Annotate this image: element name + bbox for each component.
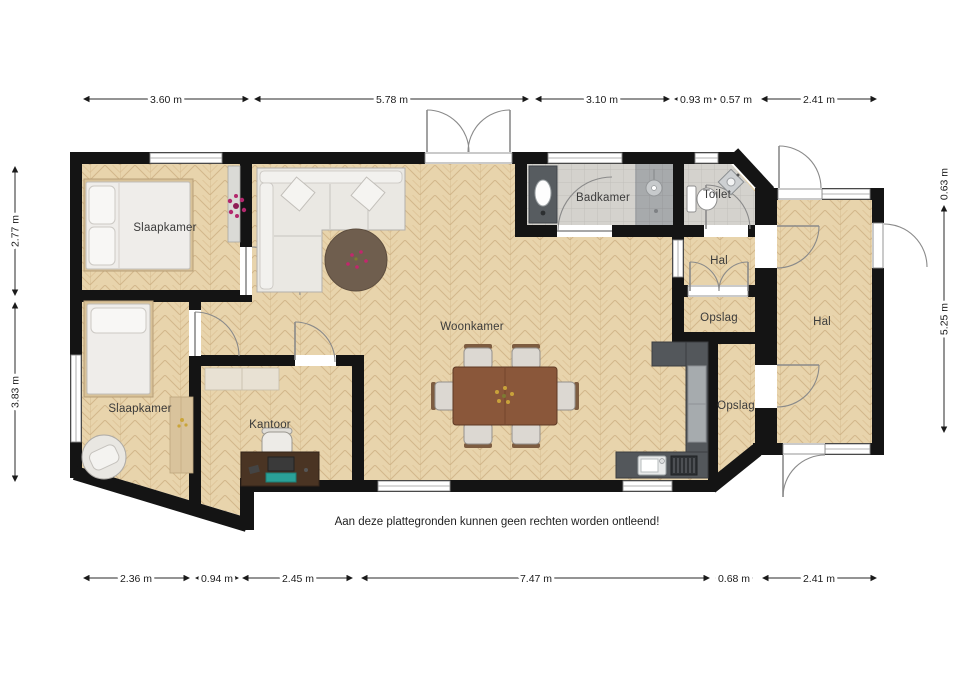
room-label-opslag: Opslag [717,400,755,412]
window [71,355,81,442]
room-label-badkamer: Badkamer [576,192,630,204]
svg-text:0.93 m: 0.93 m [680,94,712,106]
svg-text:2.77 m: 2.77 m [10,215,22,247]
disclaimer-text: Aan deze plattegronden kunnen geen recht… [335,516,660,528]
wall-kitchen-opslag [708,344,718,480]
dim-top-1: 5.78 m [255,94,528,106]
window [623,481,672,491]
room-label-kantoor: Kantoor [249,419,291,431]
door-wing-right [872,223,927,268]
svg-text:0.68 m: 0.68 m [718,573,750,585]
floorplan-page: Slaapkamer Slaapkamer Kantoor Woonkamer … [0,0,960,679]
floorplan-drawing: Slaapkamer Slaapkamer Kantoor Woonkamer … [0,0,960,679]
room-label-slaapkamer-1: Slaapkamer [133,222,196,234]
dim-top-0: 3.60 m [84,94,248,106]
dim-bottom-1: 0.94 m [196,573,238,585]
wall-badkamer-toilet [673,164,684,225]
kitchen-sink [638,456,666,475]
window [822,189,870,199]
door-wing-top-entry [778,146,822,200]
window [378,481,450,491]
svg-text:5.78 m: 5.78 m [376,94,408,106]
room-label-slaapkamer-2: Slaapkamer [108,403,171,415]
dim-left-1: 3.83 m [10,303,22,481]
single-bed [84,301,153,397]
room-label-toilet: Toilet [703,189,732,201]
dim-top-3: 0.93 m [675,94,716,106]
window [150,153,222,163]
wall-slaapkamer-divider [70,290,252,302]
dim-top-2: 3.10 m [536,94,669,106]
dining-table [453,367,557,425]
window-hal-passthrough [673,240,683,277]
dim-bottom-0: 2.36 m [84,573,189,585]
room-label-hal: Hal [813,316,831,328]
window [695,153,718,163]
dim-top-5: 2.41 m [762,94,876,106]
room-label-woonkamer: Woonkamer [440,321,504,333]
dim-right-0: 0.63 m [939,168,951,201]
bathroom-vanity [529,166,557,223]
dim-top-4: 0.57 m [718,94,752,106]
room-label-opslag-klein: Opslag [700,312,738,324]
svg-text:3.60 m: 3.60 m [150,94,182,106]
office-cabinet [205,368,279,390]
dim-bottom-5: 2.41 m [763,573,876,585]
door-wing-bottom [783,443,825,497]
svg-text:5.25 m: 5.25 m [939,303,951,335]
wall-badkamer-left [515,164,527,237]
svg-text:2.36 m: 2.36 m [120,573,152,585]
svg-text:3.83 m: 3.83 m [10,376,22,408]
stove [671,456,697,475]
wall-slaapkamer1-right [240,164,252,247]
svg-text:3.10 m: 3.10 m [586,94,618,106]
svg-text:0.63 m: 0.63 m [939,168,951,200]
svg-text:7.47 m: 7.47 m [520,573,552,585]
dim-bottom-4: 0.68 m [716,573,752,585]
door-entry-double [425,110,512,164]
room-label-hal-klein: Hal [710,255,728,267]
dim-bottom-3: 7.47 m [362,573,709,585]
svg-text:2.45 m: 2.45 m [282,573,314,585]
dim-bottom-2: 2.45 m [243,573,352,585]
wall-kantoor-right [352,366,364,492]
svg-text:2.41 m: 2.41 m [803,573,835,585]
desk [241,452,319,486]
svg-text:0.94 m: 0.94 m [201,573,233,585]
wardrobe [170,397,193,473]
dim-right-1: 5.25 m [939,206,951,432]
svg-text:2.41 m: 2.41 m [803,94,835,106]
dim-left-0: 2.77 m [10,167,22,295]
armchair [82,435,126,479]
window [825,444,870,454]
svg-text:0.57 m: 0.57 m [720,94,752,106]
round-rug [325,229,387,291]
window [548,153,622,163]
wall-kantoor-top [201,355,364,366]
